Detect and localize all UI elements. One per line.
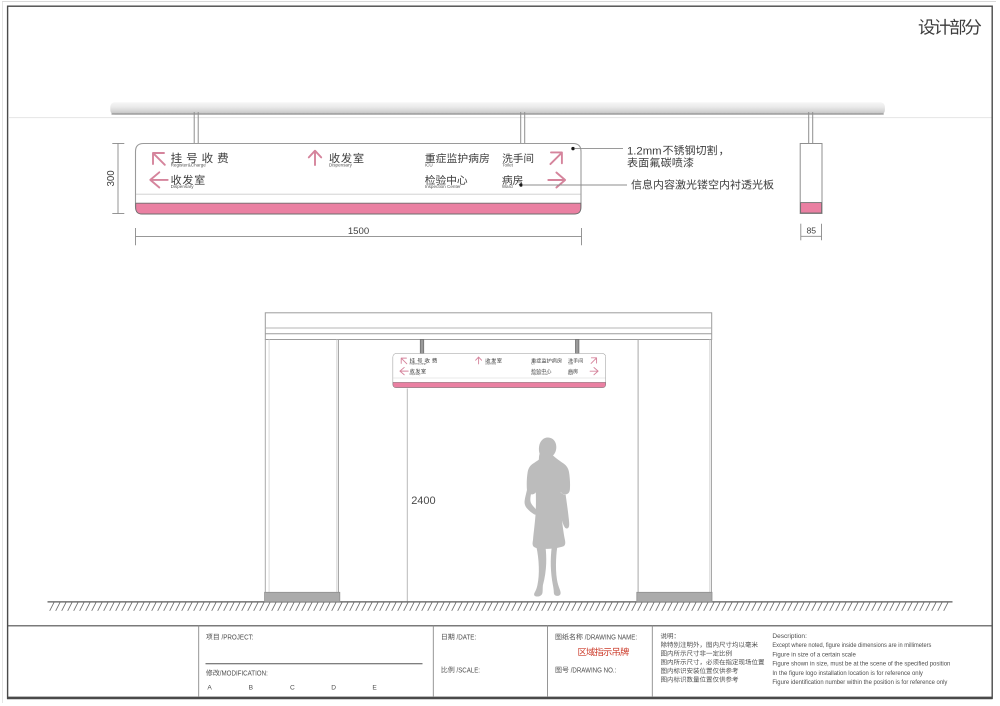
svg-text:85: 85	[806, 226, 816, 236]
svg-text:B: B	[249, 684, 254, 691]
svg-text:2400: 2400	[411, 495, 435, 507]
svg-text:C: C	[290, 684, 295, 691]
svg-text:300: 300	[106, 170, 117, 187]
svg-text:Except where noted, figure ins: Except where noted, figure inside dimens…	[772, 642, 932, 649]
svg-text:/MODIFICATION:: /MODIFICATION:	[220, 670, 268, 677]
svg-text:D: D	[331, 684, 336, 691]
svg-text:/DRAWING NAME:: /DRAWING NAME:	[585, 634, 637, 641]
svg-text:In the figure logo installatio: In the figure logo installation location…	[772, 670, 923, 677]
svg-text:/PROJECT:: /PROJECT:	[222, 634, 254, 641]
svg-text:E: E	[372, 684, 377, 691]
svg-text:Description:: Description:	[772, 633, 807, 640]
svg-text:A: A	[207, 684, 212, 691]
svg-text:1500: 1500	[348, 226, 369, 237]
svg-text:Figure in size of a certain sc: Figure in size of a certain scale	[772, 651, 856, 658]
svg-text:1.2mm: 1.2mm	[627, 145, 662, 157]
svg-text:/SCALE:: /SCALE:	[457, 667, 481, 674]
svg-text:Figure shown in size, must be: Figure shown in size, must be at the sce…	[772, 661, 950, 668]
svg-text:Figure identification number w: Figure identification number within the …	[772, 679, 948, 686]
svg-text:/DRAWING NO.:: /DRAWING NO.:	[571, 667, 617, 674]
svg-text:/DATE:: /DATE:	[457, 634, 477, 641]
